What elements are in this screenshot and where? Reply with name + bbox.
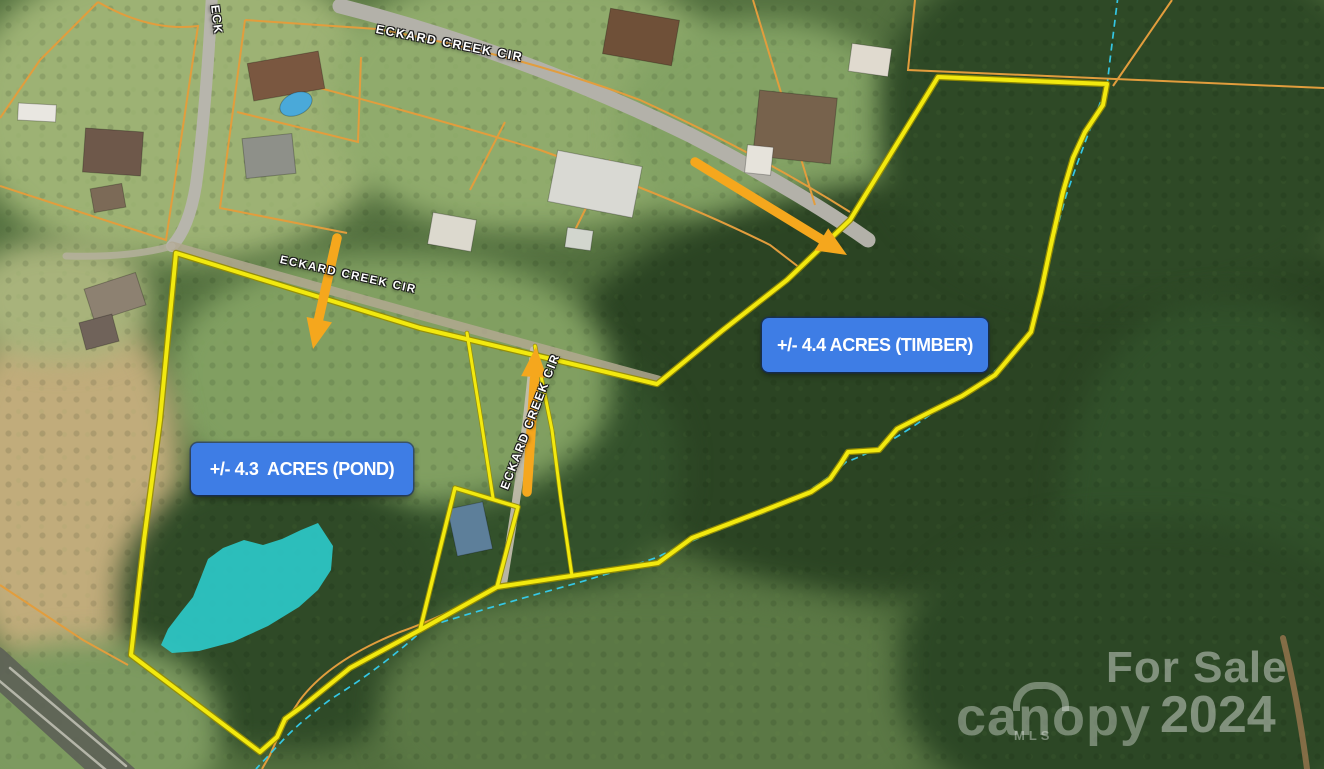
watermark-year: 2024 [1160, 689, 1276, 741]
acreage-label-pond: +/- 4.3 ACRES (POND) [191, 443, 413, 495]
arrow-head [307, 317, 332, 349]
building [548, 150, 642, 217]
building [242, 133, 296, 178]
building [603, 8, 680, 65]
creek-line [256, 0, 1118, 769]
building [848, 43, 892, 76]
building [428, 212, 477, 251]
building [18, 103, 57, 122]
building [90, 183, 126, 212]
building [565, 227, 594, 250]
building [247, 51, 325, 101]
building [79, 314, 119, 350]
road-eckard-creek-north-segment [172, 0, 212, 246]
pond-overlay [161, 523, 333, 653]
building [84, 272, 146, 321]
railroad [0, 662, 126, 769]
acreage-label-pond-text: +/- 4.3 ACRES (POND) [210, 459, 394, 480]
watermark-mls: MLS [1014, 729, 1053, 742]
building [447, 502, 492, 556]
road-west-spur [66, 246, 172, 256]
watermark-for-sale: For Sale [1106, 646, 1288, 690]
building [745, 145, 774, 176]
road-along-boundary [172, 246, 658, 380]
arrow-shaft [318, 238, 337, 322]
acreage-label-timber: +/- 4.4 ACRES (TIMBER) [762, 318, 988, 372]
buildings-layer [18, 8, 892, 556]
railroad-bed [0, 662, 122, 769]
aerial-parcel-map: ECKARD CREEK CIR ECKARD CREEK CIR ECKARD… [0, 0, 1324, 769]
acreage-label-timber-text: +/- 4.4 ACRES (TIMBER) [777, 335, 973, 356]
building [83, 128, 144, 176]
